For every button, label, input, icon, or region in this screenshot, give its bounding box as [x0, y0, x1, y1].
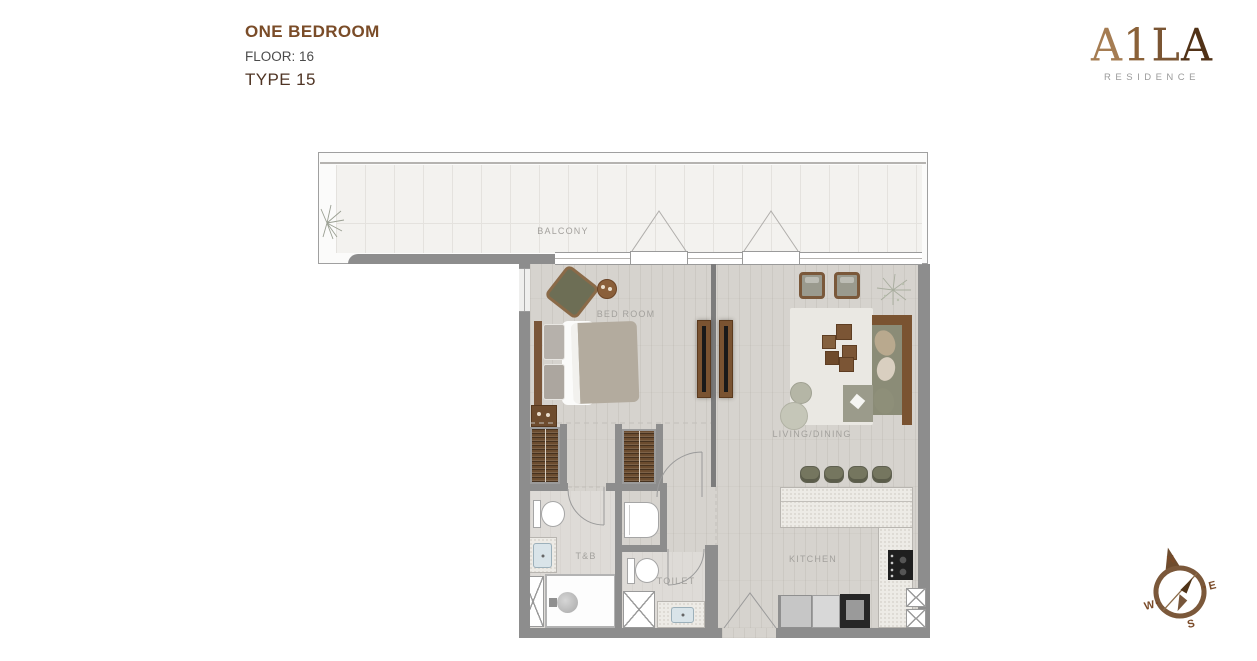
bedroom-label: BED ROOM [597, 309, 656, 319]
balcony-label: BALCONY [537, 226, 588, 236]
sofa-frame-side [902, 315, 912, 425]
cooktop [888, 550, 913, 580]
bar-stool [872, 466, 892, 483]
bed-duvet [571, 321, 640, 404]
wall-segment [918, 264, 930, 638]
living-label: LIVING/DINING [772, 429, 851, 439]
table-decor [601, 285, 605, 289]
toilet-label: TOILET [657, 576, 696, 586]
shower [545, 574, 616, 628]
washer [624, 502, 659, 538]
coffee-table [836, 324, 852, 340]
compass-north-label: N [1166, 553, 1177, 567]
oven [840, 594, 870, 628]
powder-vanity [657, 601, 705, 628]
shower-valve [549, 598, 557, 607]
wall-segment [705, 545, 718, 628]
powder-sink [671, 607, 694, 623]
toilet-bowl [635, 558, 659, 583]
side-table [597, 279, 617, 299]
toilet-tank [533, 500, 541, 528]
compass-needle-leaf [1178, 577, 1196, 594]
floorplan: BALCONY LIVING/DINING BED ROOM [0, 0, 1257, 661]
wall-segment [776, 628, 930, 638]
balcony-tiles [336, 165, 922, 253]
wall-segment [711, 264, 716, 487]
wall-segment [615, 491, 622, 628]
wall-segment [622, 545, 667, 552]
washer-line [629, 505, 630, 535]
compass-south-label: S [1186, 618, 1196, 631]
compass-rose: N E W S [1132, 538, 1225, 640]
armchair [834, 272, 860, 299]
dishwasher [812, 595, 840, 628]
bar-stool [824, 466, 844, 483]
compass-east-label: E [1207, 579, 1217, 592]
shaft [906, 588, 926, 607]
armchair [799, 272, 825, 299]
nightstand [531, 405, 557, 427]
bed-headboard [534, 321, 542, 405]
wall-segment [519, 628, 722, 638]
shaft [623, 591, 655, 628]
bed-pillow [543, 324, 565, 360]
bar-stool [848, 466, 868, 483]
wall-segment [656, 424, 663, 491]
balcony-door-sill [742, 251, 800, 265]
nightstand-decor [537, 412, 541, 416]
toilet-bowl [541, 501, 565, 527]
pouf [790, 382, 812, 404]
bed [534, 321, 638, 405]
tb-label: T&B [575, 551, 596, 561]
bed-pillow [543, 364, 565, 400]
balcony-door-sill [630, 251, 688, 265]
wall-segment [519, 264, 530, 638]
tb-toilet [533, 498, 566, 530]
wall-segment [560, 424, 567, 491]
oven-door [846, 600, 864, 620]
tv-console [697, 320, 711, 398]
window [519, 268, 530, 312]
compass: N E W S [1128, 532, 1238, 647]
compass-west-label: W [1143, 599, 1157, 613]
nightstand-decor [546, 413, 550, 417]
table-decor [608, 287, 612, 291]
window-wall [555, 252, 922, 265]
coffee-table [825, 351, 839, 365]
entry-threshold [722, 628, 776, 638]
powder-toilet [627, 556, 660, 586]
counter-edge-line [781, 501, 912, 502]
shaft [906, 609, 926, 628]
wall-segment [615, 424, 622, 491]
bar-stool [800, 466, 820, 483]
wardrobe [622, 429, 656, 484]
coffee-table [822, 335, 836, 349]
balcony-railing-line [320, 162, 926, 164]
pouf [780, 402, 808, 430]
kitchen-label: KITCHEN [789, 554, 837, 564]
tb-vanity [528, 537, 557, 573]
wall-segment [660, 483, 667, 545]
wall-segment [348, 254, 557, 264]
coffee-table [839, 357, 854, 372]
shower-head [557, 592, 578, 613]
toilet-tank [627, 558, 635, 584]
tv-console [719, 320, 733, 398]
refrigerator [778, 595, 812, 628]
tb-sink [533, 543, 552, 568]
kitchen-counter [780, 487, 913, 528]
wardrobe [530, 427, 560, 484]
